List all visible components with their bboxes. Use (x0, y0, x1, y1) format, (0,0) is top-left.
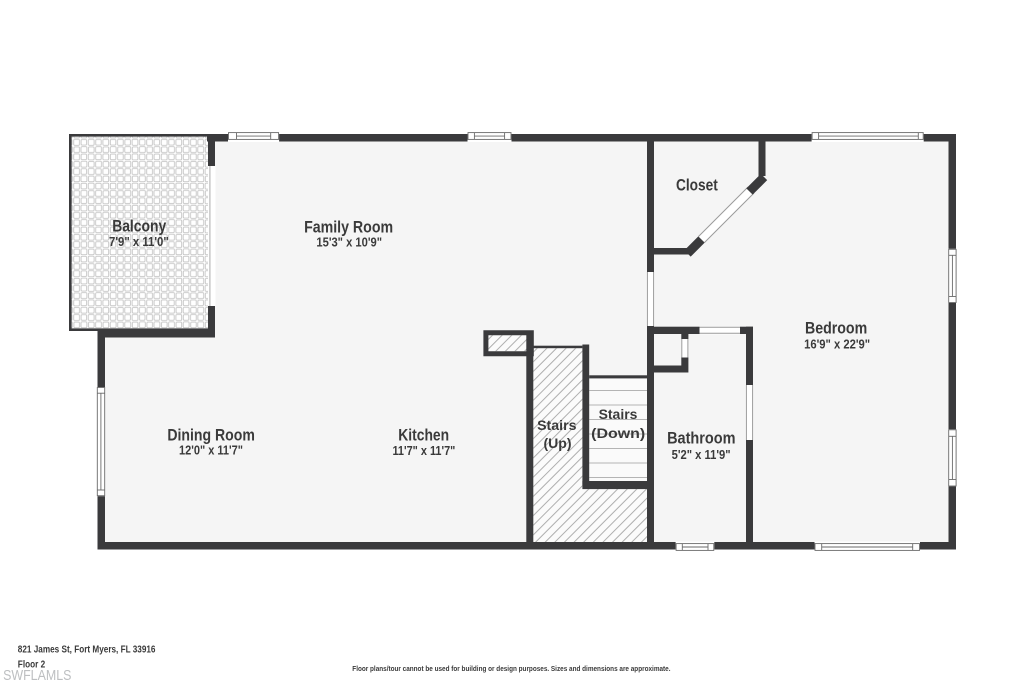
svg-text:(Down): (Down) (591, 426, 645, 442)
svg-text:Bedroom: Bedroom (805, 320, 867, 338)
svg-text:Floor plans/tour cannot be use: Floor plans/tour cannot be used for buil… (352, 666, 670, 673)
svg-text:11'7" x 11'7": 11'7" x 11'7" (392, 443, 455, 458)
svg-text:821 James St, Fort Myers, FL 3: 821 James St, Fort Myers, FL 33916 (18, 644, 156, 655)
svg-text:7'9" x 11'0": 7'9" x 11'0" (109, 234, 169, 249)
svg-text:Stairs: Stairs (537, 418, 577, 434)
svg-text:Bathroom: Bathroom (667, 430, 735, 448)
svg-text:Stairs: Stairs (599, 407, 638, 423)
svg-text:Balcony: Balcony (112, 218, 166, 236)
svg-text:SWFLAMLS: SWFLAMLS (3, 668, 71, 682)
svg-text:Closet: Closet (676, 177, 718, 195)
svg-text:15'3" x 10'9": 15'3" x 10'9" (316, 234, 382, 249)
svg-text:Kitchen: Kitchen (398, 426, 449, 444)
svg-text:5'2" x 11'9": 5'2" x 11'9" (672, 447, 731, 462)
svg-text:(Up): (Up) (544, 436, 572, 452)
svg-text:16'9" x 22'9": 16'9" x 22'9" (804, 337, 870, 352)
svg-text:12'0" x 11'7": 12'0" x 11'7" (179, 442, 243, 457)
